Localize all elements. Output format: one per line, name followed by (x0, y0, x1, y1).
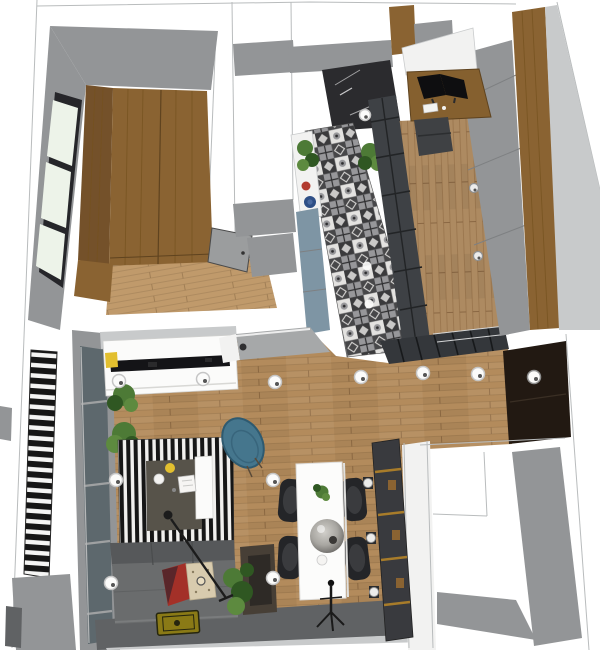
counter-pot (240, 344, 247, 351)
floor-plan-stage (0, 0, 600, 650)
table-cup (317, 555, 327, 565)
tile-white-dot (365, 300, 374, 309)
beige-pillow (186, 562, 216, 600)
ceiling-spotlight (267, 474, 280, 487)
wardrobe-knob (474, 252, 483, 261)
magazine (178, 475, 196, 493)
ceiling-spotlight (105, 577, 118, 590)
yellow-decor (105, 352, 118, 368)
pendant-lamp (310, 519, 344, 553)
white-plate (154, 474, 164, 484)
outer-wall-stub (0, 406, 12, 441)
tile-white-dot (363, 262, 372, 271)
sofa (110, 540, 238, 624)
ceiling-spotlight (355, 371, 368, 384)
red-kettle (302, 182, 311, 191)
balcony-wall-stub (5, 606, 22, 648)
console-item (148, 362, 157, 367)
wall-lamp (369, 586, 379, 598)
office-chair (414, 117, 453, 156)
ceiling-spotlight (417, 367, 430, 380)
bedroom-east-wall-stub (247, 233, 297, 277)
floor-plan-canvas (0, 0, 600, 650)
console-item (205, 358, 212, 362)
keyboard (423, 103, 438, 113)
coffee-bench (195, 456, 213, 519)
ceiling-spotlight (528, 371, 541, 384)
ceiling-spotlight (269, 376, 282, 389)
area-rug (118, 437, 234, 558)
ceiling-spotlight (110, 474, 123, 487)
wall-lamp (366, 532, 376, 544)
ceiling-spotlight (267, 572, 280, 585)
ceiling-spotlight (360, 110, 371, 121)
ceiling-spotlight (197, 373, 210, 386)
mouse (442, 106, 446, 110)
doormat (156, 610, 199, 635)
yellow-bowl (165, 463, 175, 473)
door-handle (241, 251, 245, 255)
entry-door-recess (503, 341, 571, 444)
ceiling-spotlight (113, 375, 126, 388)
wardrobe-knob (470, 184, 479, 193)
ceiling-spotlight (472, 368, 485, 381)
wall-lamp (363, 477, 373, 489)
